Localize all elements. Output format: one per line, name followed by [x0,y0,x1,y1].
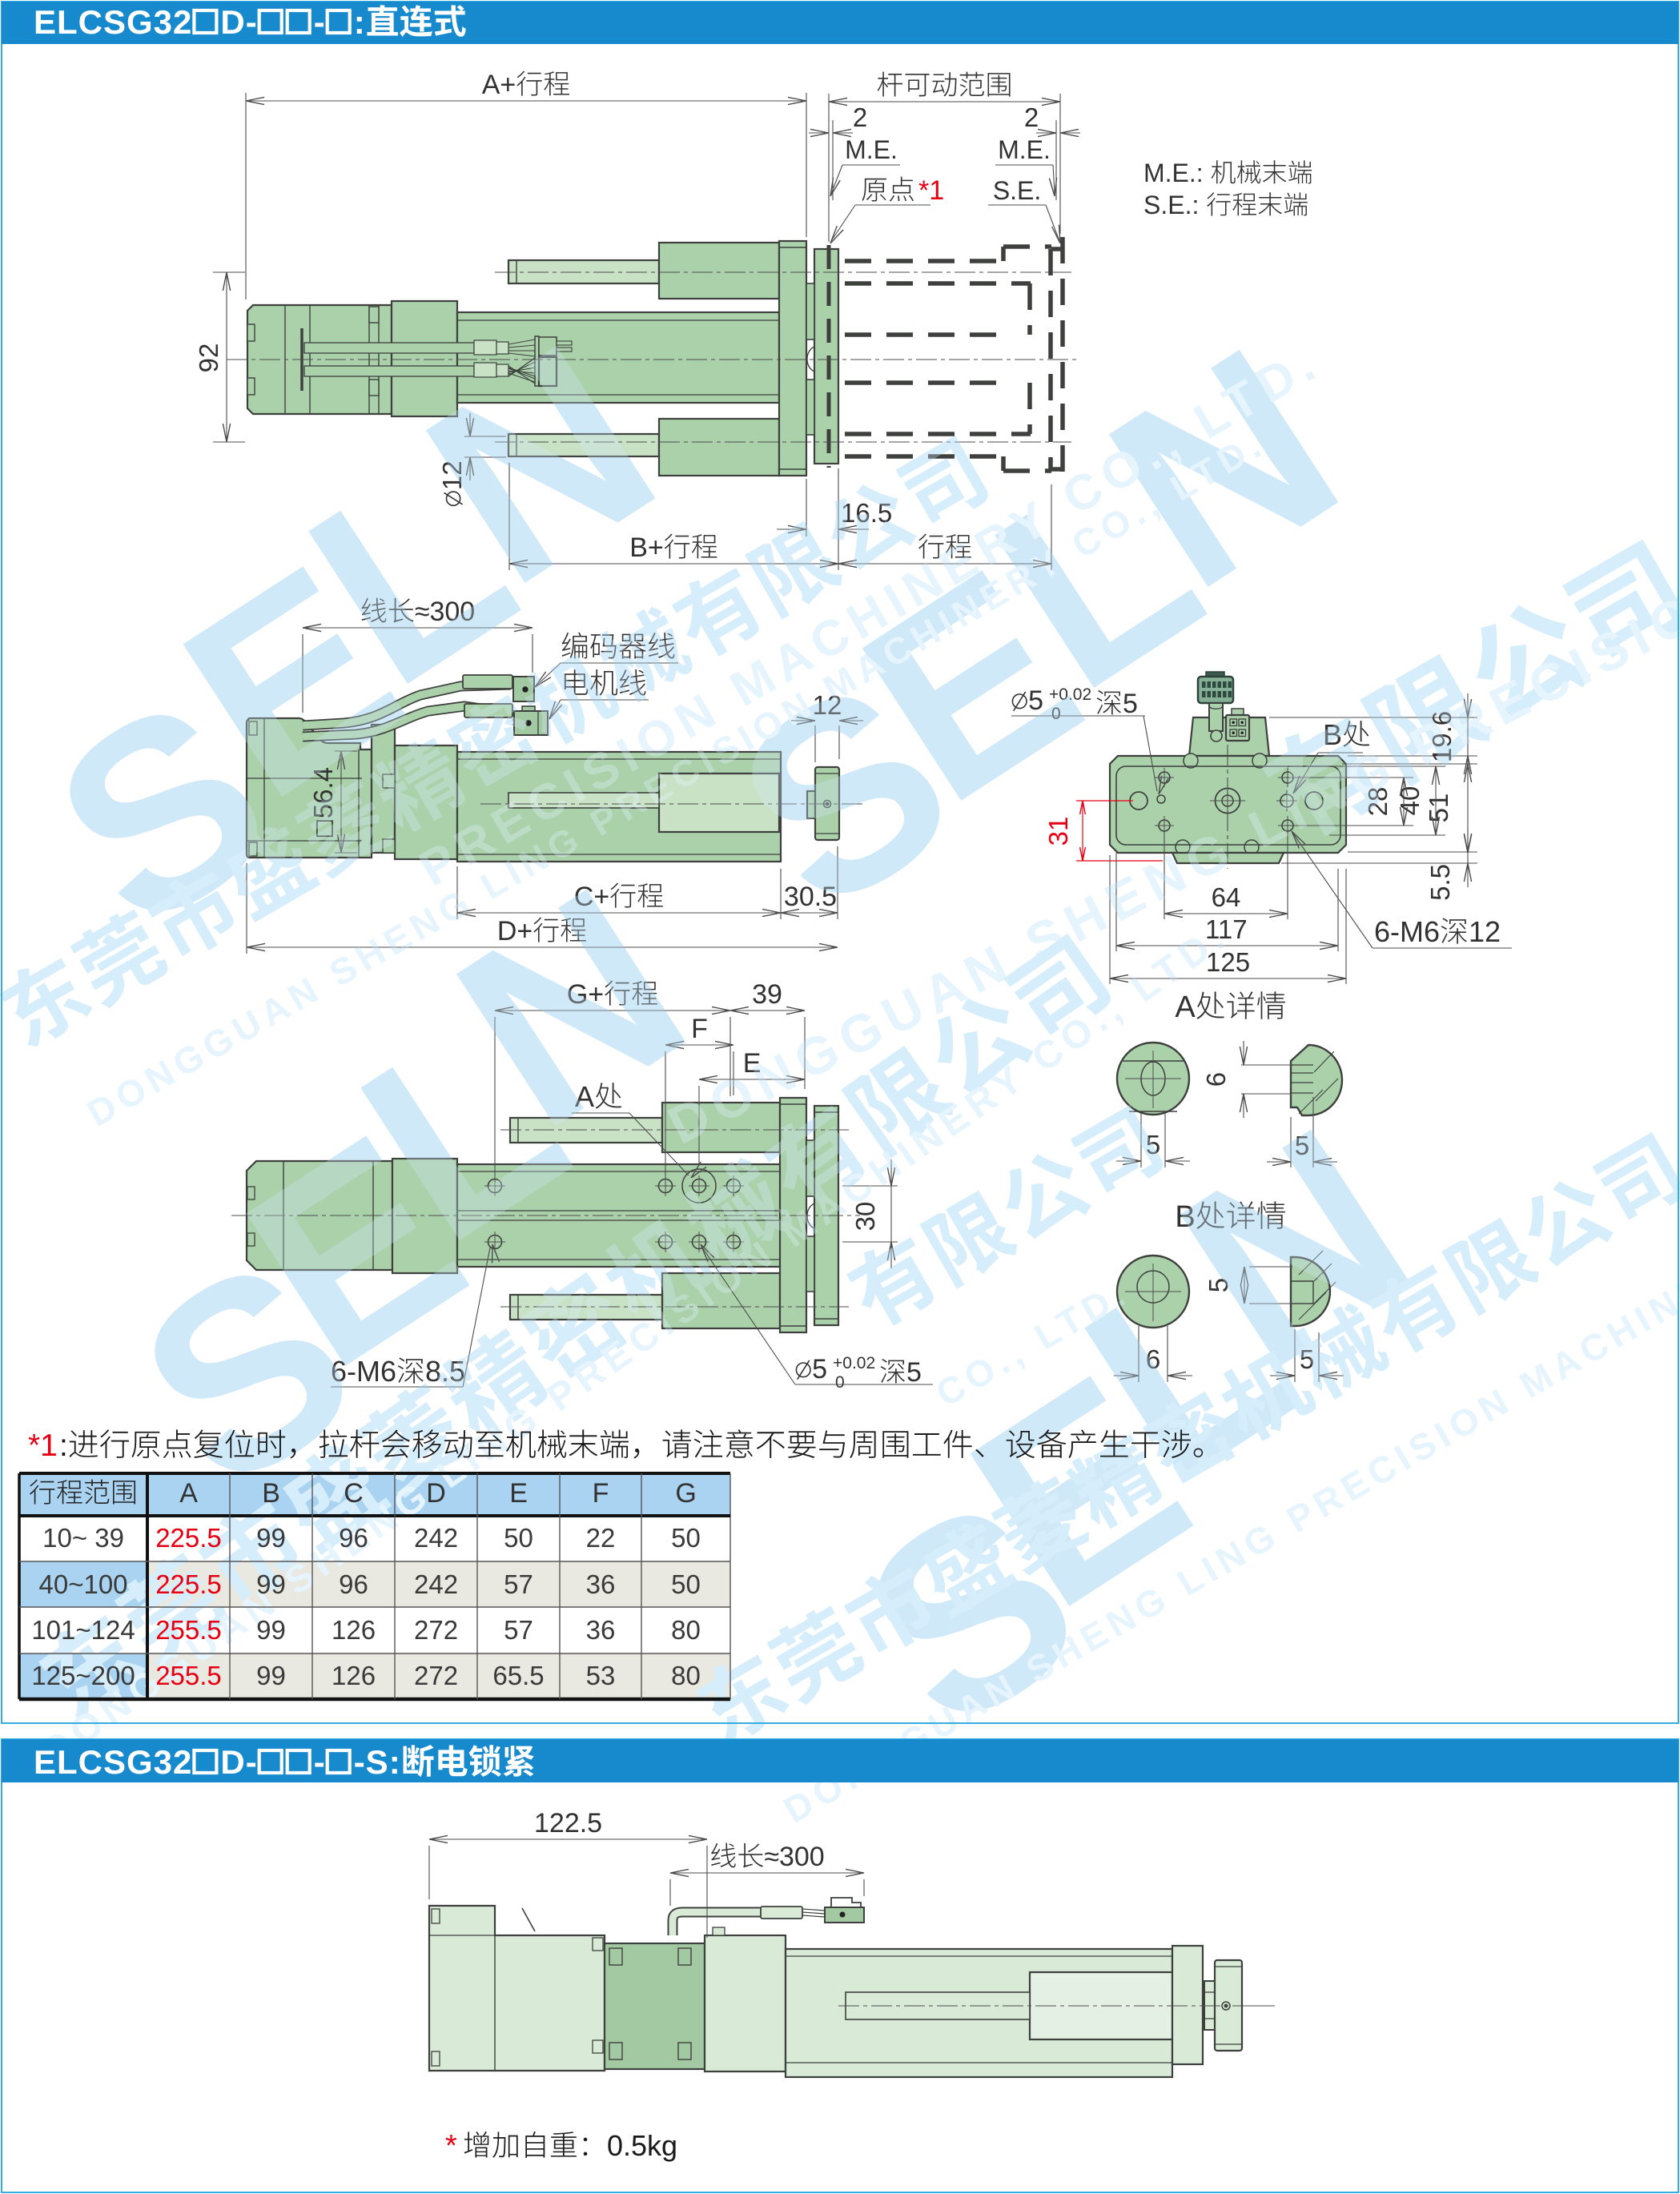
svg-text:80: 80 [671,1615,701,1645]
svg-text:B: B [262,1478,280,1509]
svg-text:99: 99 [256,1661,286,1690]
svg-text:A: A [1175,991,1196,1024]
svg-text:92: 92 [194,344,223,373]
svg-text:-S: -S [354,1743,389,1781]
svg-text:272: 272 [414,1661,458,1690]
svg-text:36: 36 [586,1615,616,1645]
svg-text:50: 50 [671,1523,701,1553]
svg-text:225.5: 225.5 [155,1523,222,1553]
svg-text:D-: D- [220,1743,257,1781]
svg-text:6-M6: 6-M6 [1374,915,1440,948]
svg-text:F: F [593,1478,609,1509]
svg-text:122.5: 122.5 [534,1808,602,1838]
svg-text:G: G [675,1478,696,1509]
svg-text:C: C [344,1478,364,1509]
svg-text:*1: *1 [918,175,944,206]
svg-text:0.5kg: 0.5kg [607,2129,677,2162]
svg-text:64: 64 [1212,882,1241,912]
svg-text:A: A [179,1478,198,1509]
svg-text:10~ 39: 10~ 39 [42,1523,124,1553]
svg-text:57: 57 [504,1569,533,1599]
svg-text:101~124: 101~124 [31,1615,135,1645]
svg-text:D-: D- [220,3,257,41]
svg-text:272: 272 [414,1615,458,1645]
svg-text:22: 22 [586,1523,616,1553]
svg-text:225.5: 225.5 [155,1569,222,1599]
svg-text:65.5: 65.5 [492,1661,544,1690]
svg-text:E: E [509,1478,528,1509]
svg-text:242: 242 [414,1569,458,1599]
svg-text::: : [354,3,366,41]
svg-text:+0.02: +0.02 [833,1354,875,1372]
svg-text:S.E.:: S.E.: [1143,191,1199,219]
svg-text:M.E.:: M.E.: [1143,159,1204,187]
svg-text:-: - [314,1743,326,1781]
svg-text:M.E.: M.E. [998,135,1051,164]
svg-text:A+: A+ [482,70,516,100]
svg-text:99: 99 [256,1615,286,1645]
svg-text:99: 99 [256,1569,286,1599]
svg-text:5: 5 [906,1357,922,1388]
svg-text:≈300: ≈300 [764,1842,824,1872]
svg-text:*: * [445,2129,457,2163]
svg-text:6: 6 [1201,1072,1231,1087]
svg-text:80: 80 [671,1661,701,1690]
svg-text:96: 96 [339,1569,368,1599]
svg-text:5.5: 5.5 [1425,864,1455,901]
svg-text:255.5: 255.5 [155,1661,222,1690]
svg-text:50: 50 [504,1523,533,1553]
svg-text:36: 36 [586,1569,616,1599]
svg-text:96: 96 [339,1523,368,1553]
svg-text:D: D [426,1478,446,1509]
svg-text:255.5: 255.5 [155,1615,222,1645]
svg-text:51: 51 [1424,794,1453,823]
svg-text:125~200: 125~200 [31,1661,135,1690]
svg-text:0: 0 [835,1373,845,1392]
svg-text:-: - [314,3,326,41]
svg-text:50: 50 [671,1569,701,1599]
svg-text:S.E.: S.E. [993,176,1041,205]
svg-text:53: 53 [586,1661,616,1690]
svg-text:ELCSG32: ELCSG32 [34,3,192,41]
svg-text:126: 126 [332,1615,376,1645]
svg-text:242: 242 [414,1523,458,1553]
svg-text:2: 2 [853,102,867,132]
svg-text:M.E.: M.E. [845,135,898,164]
svg-text:126: 126 [332,1661,376,1690]
svg-text:39: 39 [752,979,782,1010]
svg-text:57: 57 [504,1615,533,1645]
svg-text:5: 5 [812,1354,827,1384]
svg-text::: : [389,1743,401,1781]
svg-text:31: 31 [1043,817,1073,846]
svg-text:12: 12 [1469,915,1501,948]
svg-text:ELCSG32: ELCSG32 [34,1743,192,1781]
svg-text:99: 99 [256,1523,286,1553]
svg-text:*1: *1 [28,1429,58,1463]
svg-text:40~100: 40~100 [39,1569,128,1599]
svg-text:2: 2 [1024,102,1039,132]
svg-text::: : [59,1429,68,1463]
